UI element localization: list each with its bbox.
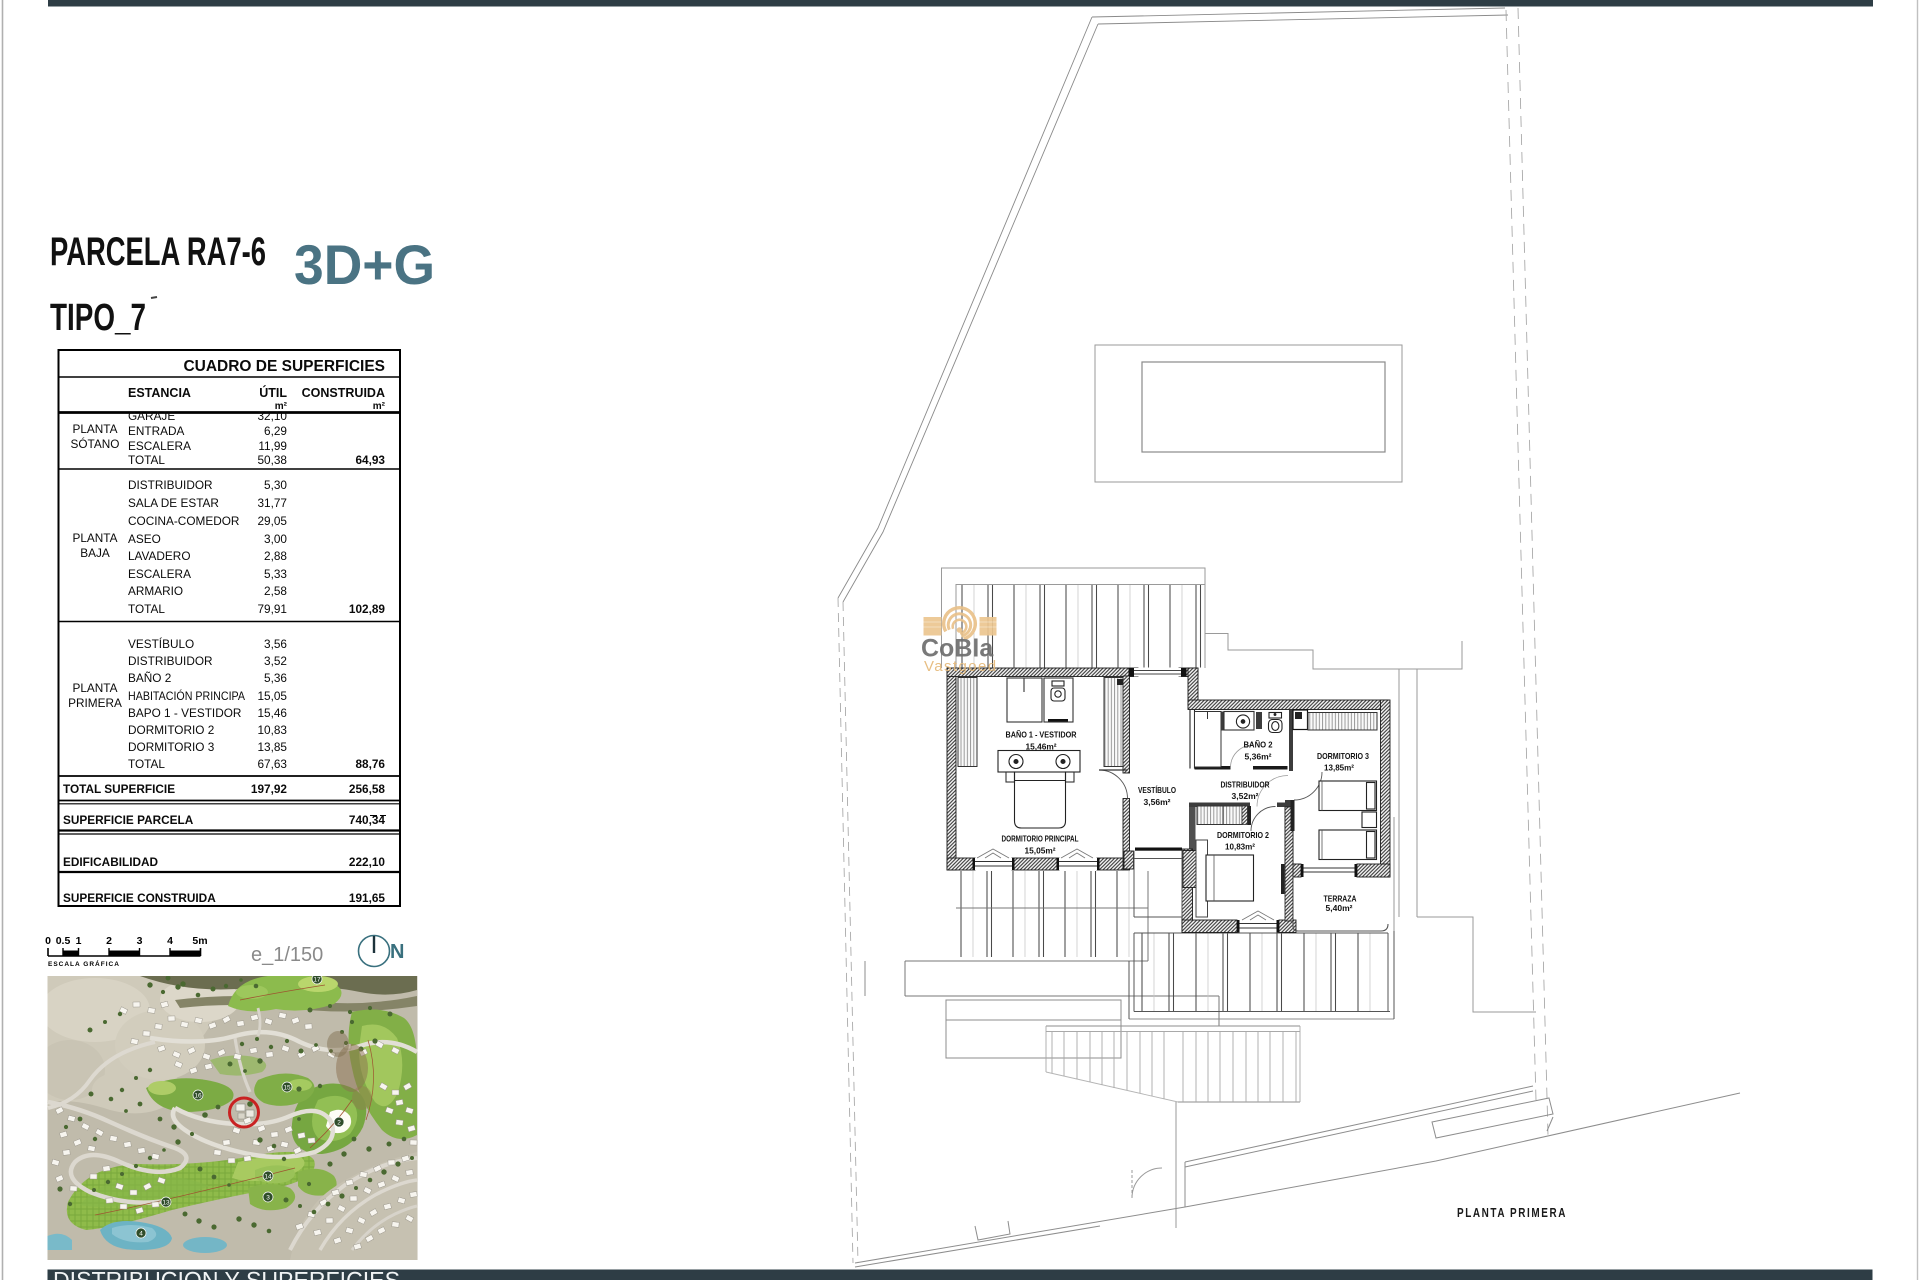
svg-text:13: 13: [162, 1200, 170, 1207]
svg-text:10,83m²: 10,83m²: [1225, 842, 1255, 852]
svg-text:3,52m²: 3,52m²: [1232, 791, 1259, 801]
svg-text:5m: 5m: [192, 935, 207, 947]
svg-text:BAÑO 1 - VESTIDOR: BAÑO 1 - VESTIDOR: [1006, 730, 1077, 740]
svg-text:CUADRO DE SUPERFICIES: CUADRO DE SUPERFICIES: [183, 358, 385, 375]
svg-text:VESTÍBULO: VESTÍBULO: [128, 637, 194, 651]
svg-text:15,46m²: 15,46m²: [1026, 742, 1057, 752]
svg-text:SÓTANO: SÓTANO: [71, 437, 120, 451]
svg-text:3: 3: [137, 935, 143, 947]
svg-text:PARCELA RA7-6: PARCELA RA7-6: [50, 230, 266, 274]
svg-text:79,91: 79,91: [257, 602, 287, 616]
svg-text:SUPERFICIE CONSTRUIDA: SUPERFICIE CONSTRUIDA: [63, 891, 216, 905]
svg-text:0: 0: [45, 935, 51, 947]
svg-text:15,46: 15,46: [257, 706, 287, 720]
svg-text:ARMARIO: ARMARIO: [128, 584, 183, 598]
svg-text:ESCALERA: ESCALERA: [128, 567, 191, 581]
svg-text:740,34: 740,34: [349, 813, 386, 827]
svg-text:BAÑO 2: BAÑO 2: [1244, 740, 1273, 750]
svg-text:15,05: 15,05: [257, 689, 287, 703]
svg-text:32,10: 32,10: [257, 409, 287, 423]
svg-text:ESCALERA: ESCALERA: [128, 439, 191, 453]
svg-text:CONSTRUIDA: CONSTRUIDA: [302, 386, 385, 400]
svg-text:PLANTA PRIMERA: PLANTA PRIMERA: [1457, 1206, 1567, 1220]
svg-text:TERRAZA: TERRAZA: [1324, 894, 1357, 904]
svg-text:256,58: 256,58: [349, 782, 386, 796]
svg-text:10,83: 10,83: [257, 723, 287, 737]
svg-text:3,00: 3,00: [264, 532, 287, 546]
svg-text:GARAJE: GARAJE: [128, 409, 175, 423]
svg-text:DORMITORIO PRINCIPAL: DORMITORIO PRINCIPAL: [1002, 834, 1079, 844]
svg-text:PLANTA: PLANTA: [72, 681, 117, 695]
svg-text:197,92: 197,92: [251, 782, 288, 796]
svg-text:TOTAL: TOTAL: [128, 453, 165, 467]
svg-text:EDIFICABILIDAD: EDIFICABILIDAD: [63, 855, 159, 869]
svg-text:2: 2: [337, 1120, 341, 1127]
svg-text:DORMITORIO 2: DORMITORIO 2: [1217, 830, 1269, 840]
svg-text:m²: m²: [373, 401, 386, 412]
svg-text:ESTANCIA: ESTANCIA: [128, 386, 191, 400]
svg-text:DORMITORIO 2: DORMITORIO 2: [128, 723, 214, 737]
svg-text:5,36: 5,36: [264, 671, 287, 685]
svg-text:ASEO: ASEO: [128, 532, 161, 546]
svg-text:SUPERFICIE PARCELA: SUPERFICIE PARCELA: [63, 813, 194, 827]
svg-text:5,36m²: 5,36m²: [1245, 752, 1272, 762]
svg-text:ENTRADA: ENTRADA: [128, 424, 185, 438]
svg-text:31,77: 31,77: [257, 496, 287, 510]
svg-text:2,58: 2,58: [264, 584, 287, 598]
svg-text:e_1/150: e_1/150: [251, 944, 323, 966]
svg-text:15,05m²: 15,05m²: [1025, 846, 1056, 856]
svg-text:ÚTIL: ÚTIL: [259, 385, 287, 400]
svg-text:17: 17: [313, 977, 321, 984]
svg-text:COCINA-COMEDOR: COCINA-COMEDOR: [128, 514, 239, 528]
svg-text:16: 16: [194, 1093, 202, 1100]
svg-text:67,63: 67,63: [257, 757, 287, 771]
svg-text:0.5: 0.5: [56, 935, 71, 947]
svg-text:5,30: 5,30: [264, 478, 287, 492]
svg-text:DISTRIBUCION Y SUPERFICIES: DISTRIBUCION Y SUPERFICIES: [53, 1268, 400, 1280]
svg-text:DISTRIBUIDOR: DISTRIBUIDOR: [128, 654, 213, 668]
svg-text:1: 1: [76, 935, 82, 947]
svg-text:VESTÍBULO: VESTÍBULO: [1138, 784, 1176, 795]
svg-text:11,99: 11,99: [258, 439, 287, 453]
svg-text:3,56: 3,56: [264, 637, 287, 651]
svg-text:222,10: 222,10: [349, 855, 386, 869]
svg-text:PLANTA: PLANTA: [72, 531, 117, 545]
svg-text:3,52: 3,52: [264, 654, 287, 668]
svg-text:13,85m²: 13,85m²: [1324, 763, 1354, 773]
svg-text:14: 14: [264, 1174, 272, 1181]
svg-text:DORMITORIO 3: DORMITORIO 3: [1317, 751, 1369, 761]
svg-text:3: 3: [266, 1195, 270, 1202]
svg-text:4: 4: [139, 1231, 143, 1238]
svg-text:TOTAL: TOTAL: [128, 757, 165, 771]
svg-text:102,89: 102,89: [349, 602, 386, 616]
svg-text:88,76: 88,76: [355, 757, 385, 771]
svg-text:LAVADERO: LAVADERO: [128, 549, 191, 563]
svg-text:50,38: 50,38: [257, 453, 287, 467]
svg-text:4: 4: [167, 935, 173, 947]
svg-text:TIPO_7: TIPO_7: [50, 297, 146, 339]
svg-text:Vastgoed: Vastgoed: [924, 658, 997, 675]
svg-text:2,88: 2,88: [264, 549, 287, 563]
svg-text:ESCALA GRÁFICA: ESCALA GRÁFICA: [48, 959, 120, 968]
svg-text:DISTRIBUIDOR: DISTRIBUIDOR: [1221, 780, 1270, 790]
svg-text:2: 2: [106, 935, 112, 947]
svg-text:HABITACIÓN PRINCIPA: HABITACIÓN PRINCIPA: [128, 689, 245, 703]
svg-text:BAÑO 2: BAÑO 2: [128, 671, 171, 685]
svg-text:BAJA: BAJA: [80, 546, 110, 560]
svg-text:5,40m²: 5,40m²: [1326, 903, 1353, 913]
svg-text:TOTAL SUPERFICIE: TOTAL SUPERFICIE: [63, 782, 175, 796]
svg-text:DISTRIBUIDOR: DISTRIBUIDOR: [128, 478, 213, 492]
svg-text:BAPO 1 - VESTIDOR: BAPO 1 - VESTIDOR: [128, 706, 241, 720]
svg-text:64,93: 64,93: [355, 453, 385, 467]
svg-text:15: 15: [283, 1085, 291, 1092]
svg-text:PRIMERA: PRIMERA: [68, 696, 122, 710]
svg-text:DORMITORIO 3: DORMITORIO 3: [128, 740, 215, 754]
svg-text:191,65: 191,65: [349, 891, 386, 905]
svg-text:N: N: [390, 941, 404, 963]
svg-text:TOTAL: TOTAL: [128, 602, 165, 616]
svg-text:5,33: 5,33: [264, 567, 287, 581]
svg-text:PLANTA: PLANTA: [72, 422, 117, 436]
svg-text:6,29: 6,29: [264, 424, 287, 438]
svg-text:3,56m²: 3,56m²: [1144, 797, 1171, 807]
svg-text:13,85: 13,85: [257, 740, 287, 754]
svg-text:3D+G: 3D+G: [294, 233, 435, 296]
svg-text:29,05: 29,05: [257, 514, 287, 528]
svg-text:SALA DE ESTAR: SALA DE ESTAR: [128, 496, 219, 510]
